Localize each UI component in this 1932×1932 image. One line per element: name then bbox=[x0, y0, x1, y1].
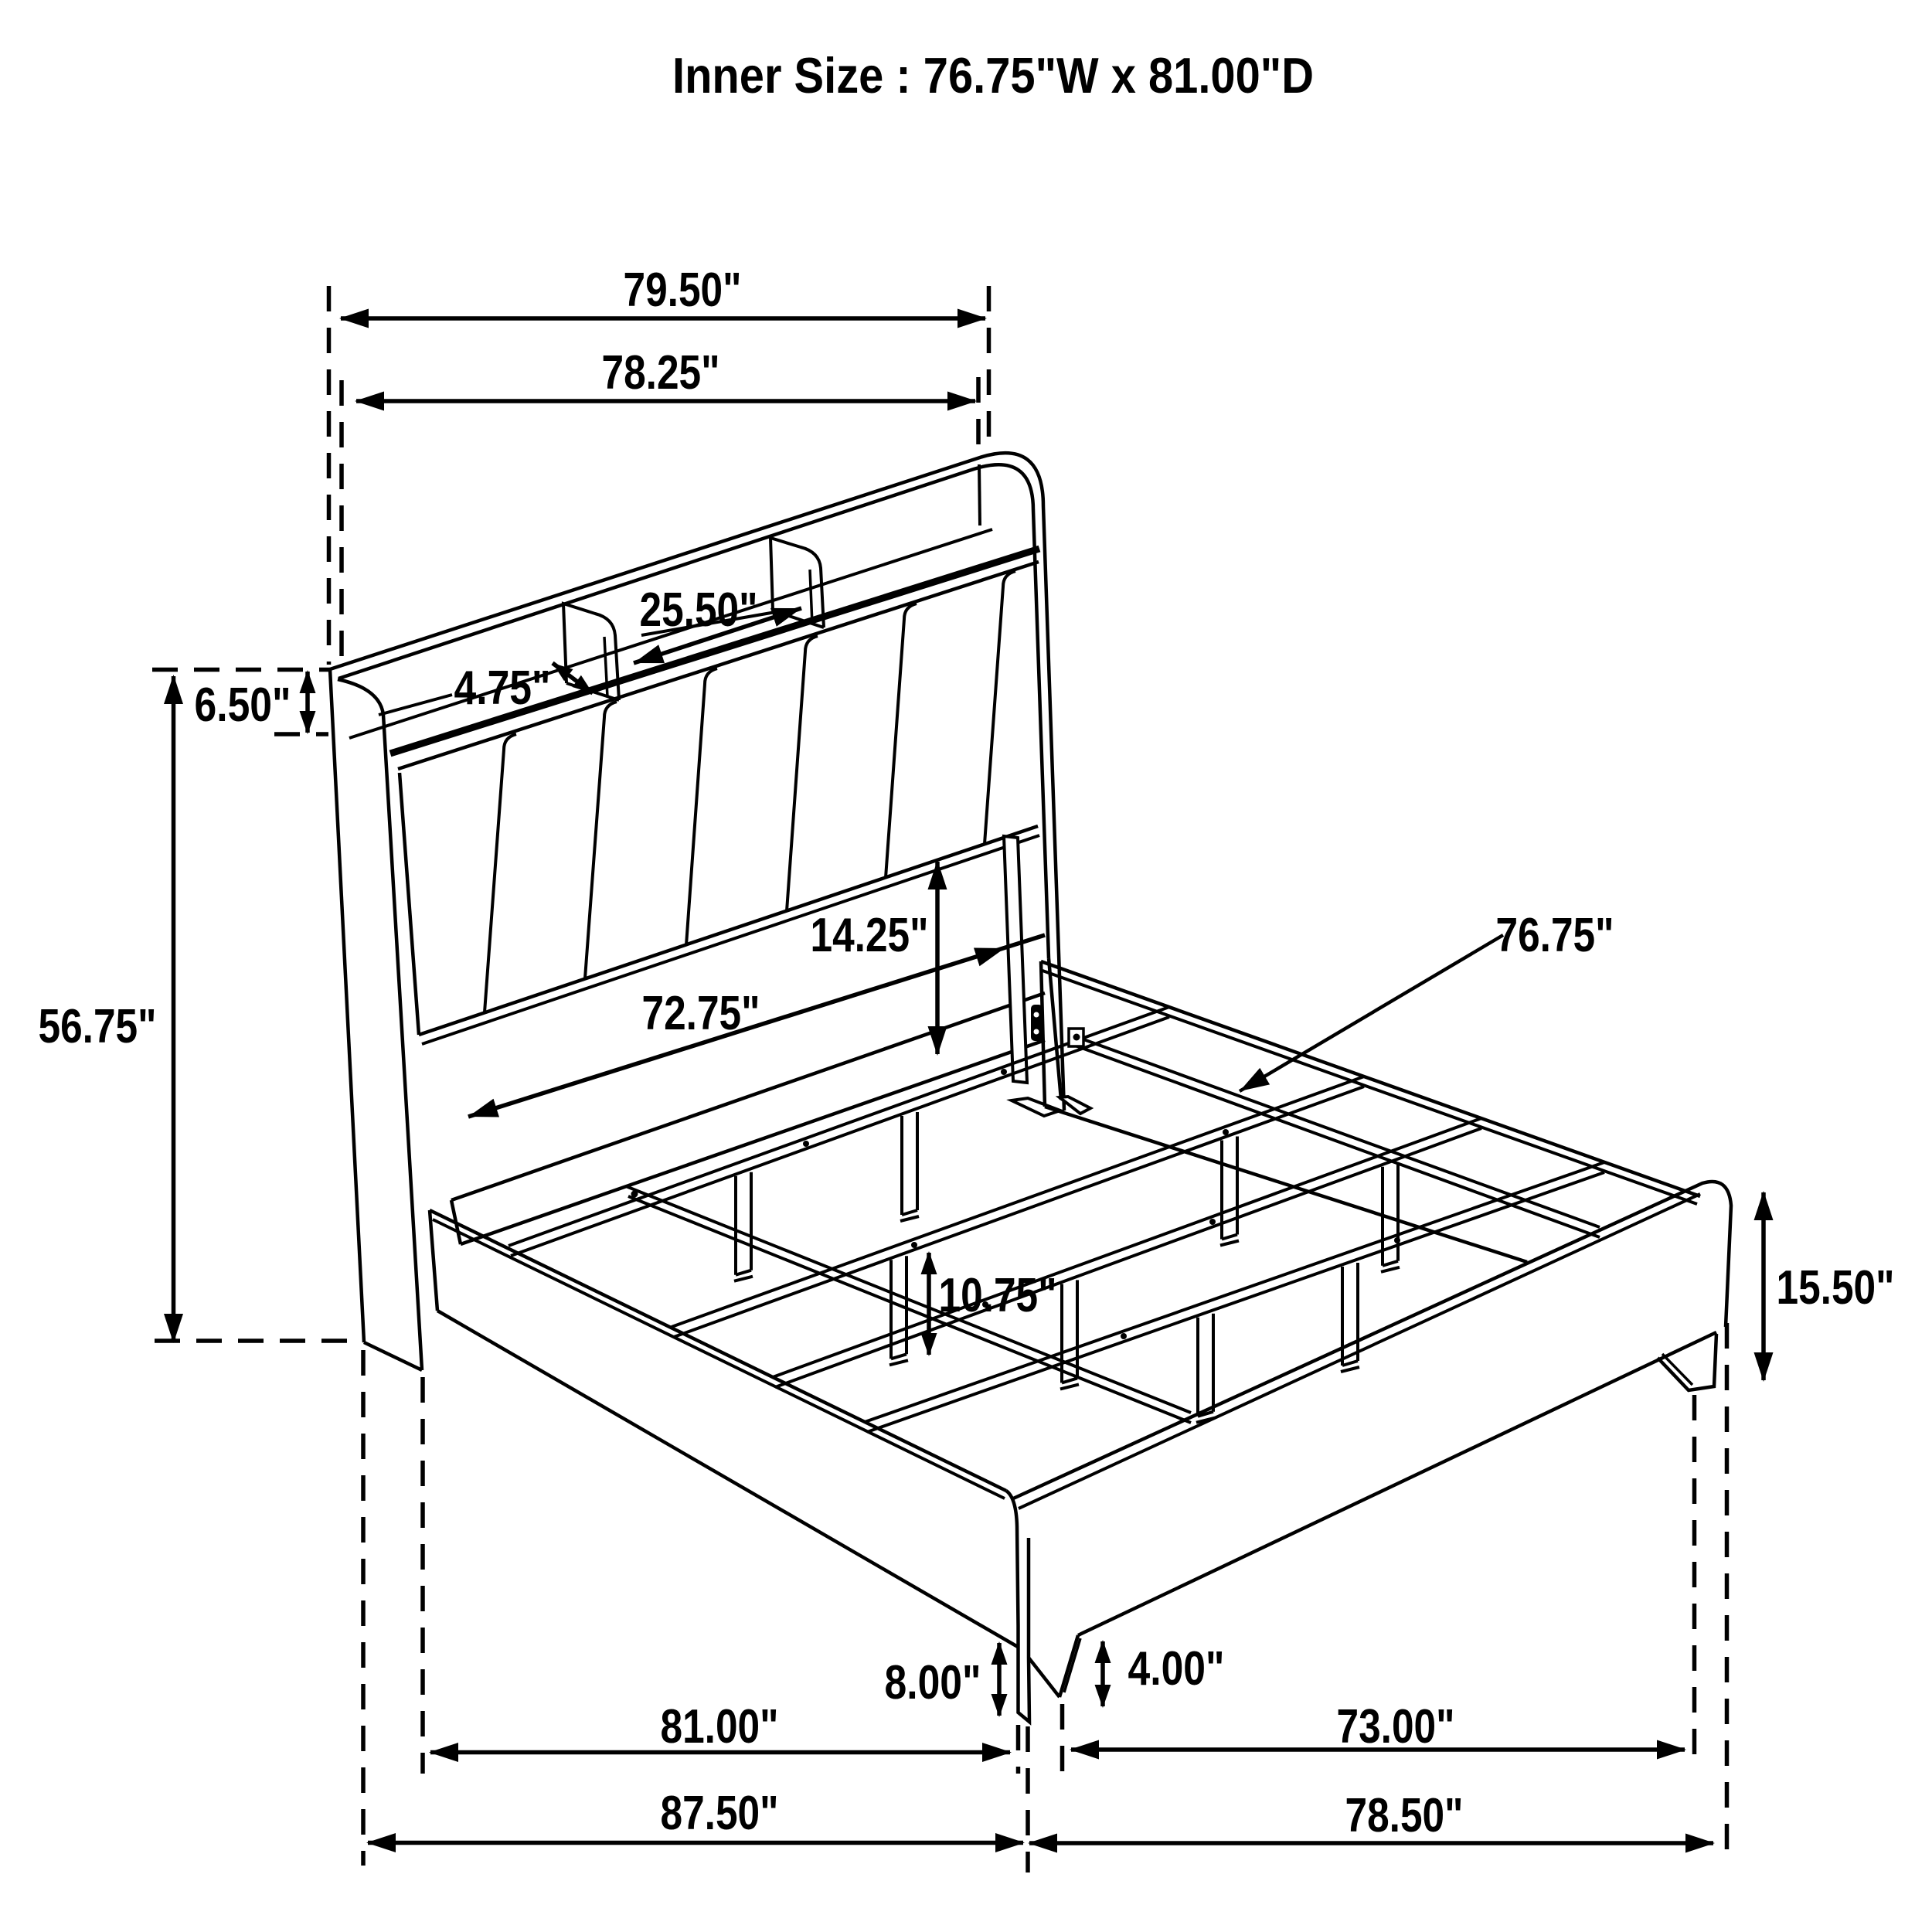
svg-text:76.75": 76.75" bbox=[1496, 909, 1614, 962]
svg-text:15.50": 15.50" bbox=[1777, 1261, 1895, 1315]
svg-text:10.75": 10.75" bbox=[939, 1269, 1057, 1322]
svg-text:56.75": 56.75" bbox=[39, 1000, 157, 1053]
svg-text:4.00": 4.00" bbox=[1128, 1642, 1225, 1696]
svg-text:79.50": 79.50" bbox=[624, 264, 742, 317]
svg-text:78.50": 78.50" bbox=[1345, 1789, 1464, 1842]
svg-text:Inner Size : 76.75"W x 81.00"D: Inner Size : 76.75"W x 81.00"D bbox=[672, 47, 1314, 104]
svg-text:14.25": 14.25" bbox=[811, 909, 929, 962]
svg-text:4.75": 4.75" bbox=[454, 662, 551, 715]
svg-text:6.50": 6.50" bbox=[195, 679, 291, 732]
svg-text:72.75": 72.75" bbox=[642, 987, 760, 1040]
svg-text:78.25": 78.25" bbox=[602, 346, 720, 400]
svg-text:8.00": 8.00" bbox=[885, 1656, 981, 1709]
svg-text:81.00": 81.00" bbox=[661, 1700, 779, 1753]
svg-text:25.50": 25.50" bbox=[640, 583, 758, 637]
svg-text:73.00": 73.00" bbox=[1337, 1700, 1455, 1753]
svg-text:87.50": 87.50" bbox=[661, 1787, 779, 1840]
